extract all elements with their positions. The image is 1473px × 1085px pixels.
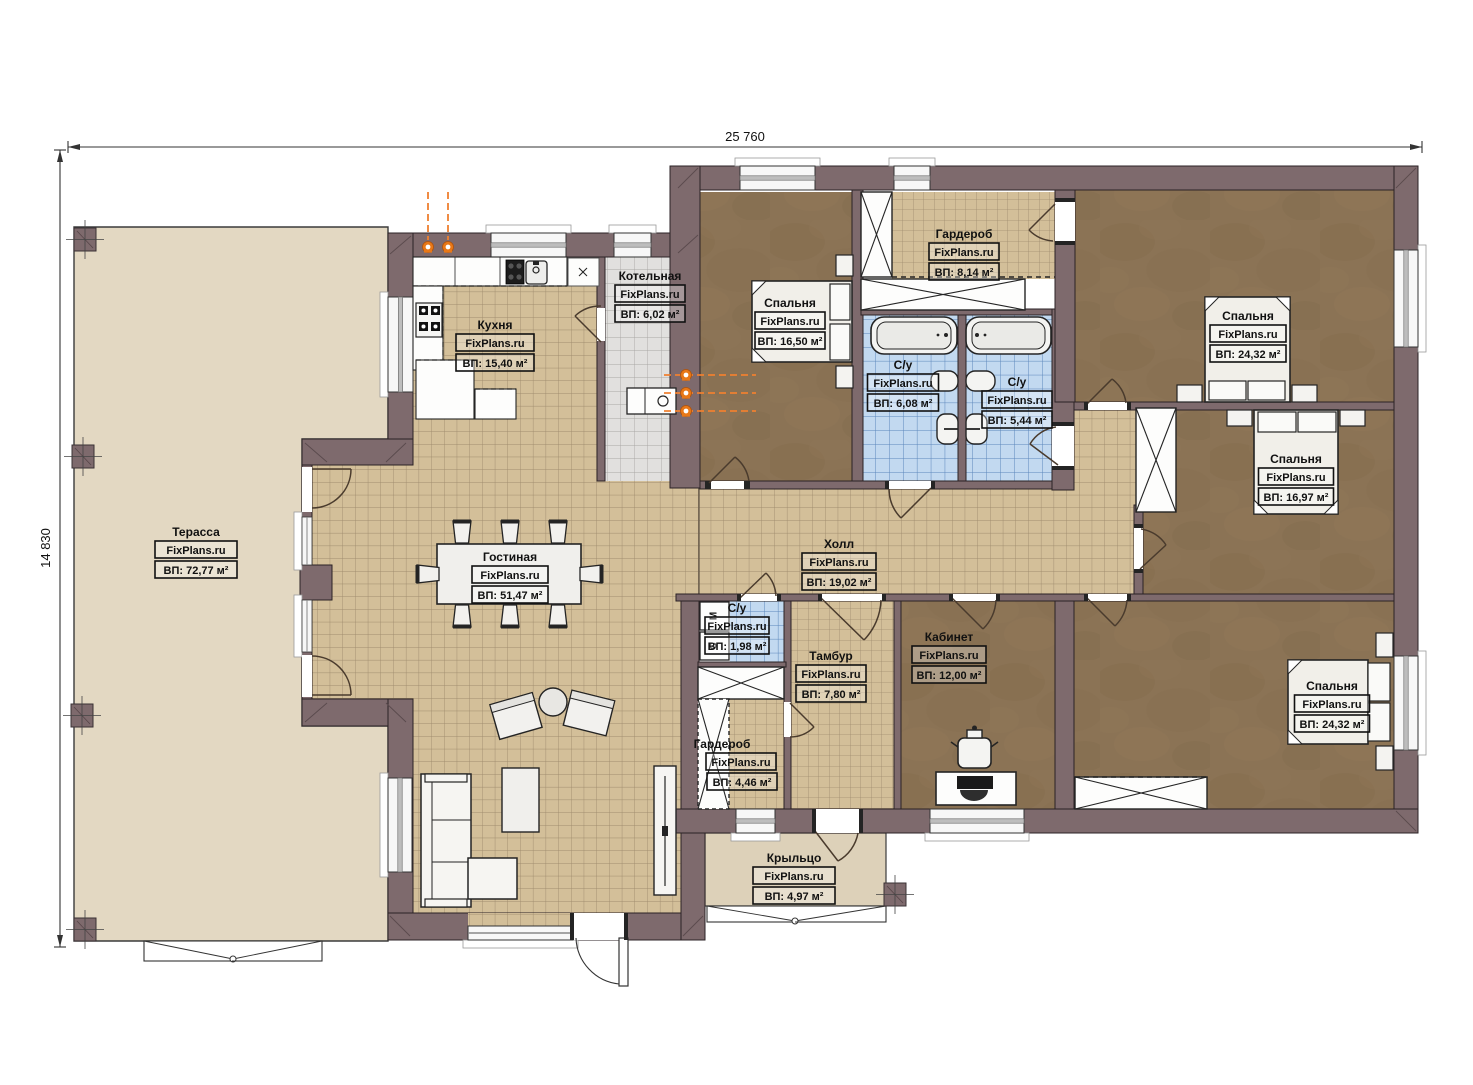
svg-text:Котельная: Котельная [619,269,682,283]
svg-text:ВП: 51,47 м²: ВП: 51,47 м² [478,590,543,602]
svg-text:ВП: 19,02 м²: ВП: 19,02 м² [807,577,872,589]
svg-text:Спальня: Спальня [764,296,816,310]
svg-text:ВП: 16,97 м²: ВП: 16,97 м² [1264,492,1329,504]
svg-text:Кухня: Кухня [477,318,512,332]
svg-text:ВП: 24,32 м²: ВП: 24,32 м² [1216,349,1281,361]
svg-text:ВП: 8,14 м²: ВП: 8,14 м² [935,267,994,279]
svg-text:Тамбур: Тамбур [809,649,853,663]
svg-text:FixPlans.ru: FixPlans.ru [987,395,1046,407]
svg-text:Спальня: Спальня [1306,679,1358,693]
svg-text:ВП: 1,98 м²: ВП: 1,98 м² [708,641,767,653]
svg-text:С/у: С/у [728,601,747,615]
svg-text:ВП: 16,50 м²: ВП: 16,50 м² [758,336,823,348]
svg-text:Крыльцо: Крыльцо [767,851,822,865]
svg-text:14 830: 14 830 [38,528,53,568]
svg-text:ВП: 4,46 м²: ВП: 4,46 м² [713,777,772,789]
svg-text:FixPlans.ru: FixPlans.ru [801,669,860,681]
svg-text:25 760: 25 760 [725,129,765,144]
svg-text:FixPlans.ru: FixPlans.ru [764,871,823,883]
svg-text:Холл: Холл [824,537,854,551]
svg-text:Гардероб: Гардероб [936,227,993,241]
svg-text:FixPlans.ru: FixPlans.ru [707,621,766,633]
svg-text:С/у: С/у [1008,375,1027,389]
svg-text:ВП: 7,80 м²: ВП: 7,80 м² [802,689,861,701]
svg-text:FixPlans.ru: FixPlans.ru [1302,699,1361,711]
svg-text:ВП: 6,02 м²: ВП: 6,02 м² [621,309,680,321]
svg-text:FixPlans.ru: FixPlans.ru [919,650,978,662]
svg-text:FixPlans.ru: FixPlans.ru [166,545,225,557]
svg-text:Спальня: Спальня [1222,309,1274,323]
svg-text:С/у: С/у [894,358,913,372]
svg-text:FixPlans.ru: FixPlans.ru [465,338,524,350]
svg-text:ВП: 5,44 м²: ВП: 5,44 м² [988,415,1047,427]
svg-text:Кабинет: Кабинет [925,630,974,644]
svg-text:ВП: 12,00 м²: ВП: 12,00 м² [917,670,982,682]
svg-text:FixPlans.ru: FixPlans.ru [480,570,539,582]
svg-text:FixPlans.ru: FixPlans.ru [1266,472,1325,484]
svg-text:FixPlans.ru: FixPlans.ru [620,289,679,301]
svg-text:FixPlans.ru: FixPlans.ru [934,247,993,259]
svg-text:ВП: 72,77 м²: ВП: 72,77 м² [164,565,229,577]
svg-text:Спальня: Спальня [1270,452,1322,466]
svg-text:ВП: 15,40 м²: ВП: 15,40 м² [463,358,528,370]
svg-text:Терасса: Терасса [172,525,220,539]
svg-text:ВП: 24,32 м²: ВП: 24,32 м² [1300,719,1365,731]
svg-text:ВП: 6,08 м²: ВП: 6,08 м² [874,398,933,410]
svg-text:ВП: 4,97 м²: ВП: 4,97 м² [765,891,824,903]
svg-text:Гардероб: Гардероб [694,737,751,751]
svg-text:FixPlans.ru: FixPlans.ru [809,557,868,569]
svg-text:FixPlans.ru: FixPlans.ru [711,757,770,769]
svg-text:Гостиная: Гостиная [483,550,537,564]
svg-text:FixPlans.ru: FixPlans.ru [873,378,932,390]
svg-text:FixPlans.ru: FixPlans.ru [760,316,819,328]
svg-text:FixPlans.ru: FixPlans.ru [1218,329,1277,341]
